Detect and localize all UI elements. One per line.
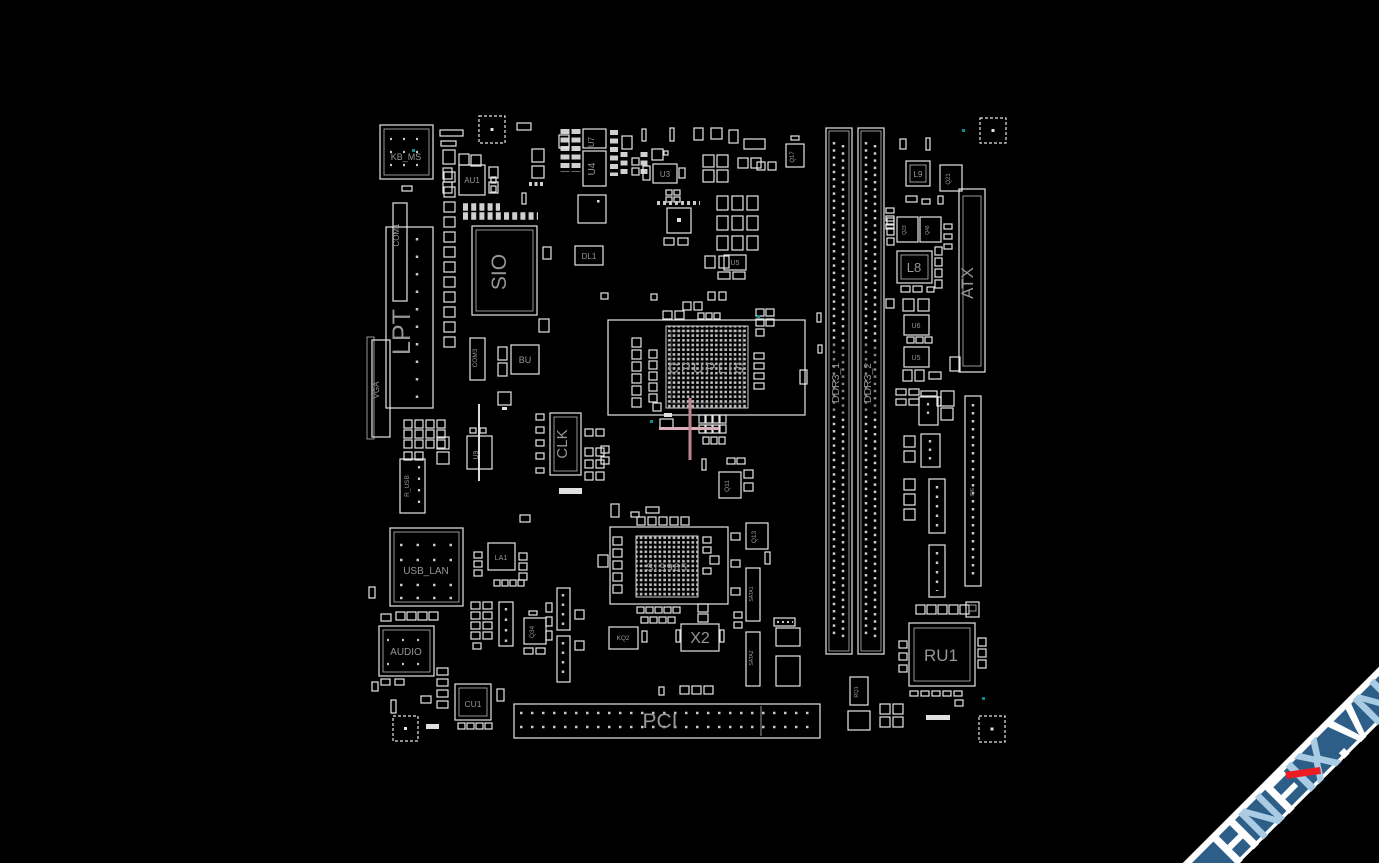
svg-text:RQ1: RQ1	[854, 686, 860, 697]
svg-text:VGA: VGA	[372, 381, 381, 399]
svg-text:U9: U9	[473, 450, 480, 459]
svg-text:PCI: PCI	[642, 710, 677, 733]
svg-text:LA1: LA1	[495, 555, 508, 562]
svg-text:SATA1: SATA1	[749, 586, 755, 601]
svg-text:CLK: CLK	[554, 429, 571, 458]
svg-text:AU1: AU1	[464, 176, 480, 185]
svg-text:ATX: ATX	[958, 267, 977, 299]
svg-text:Q48: Q48	[925, 225, 931, 235]
svg-text:USB_LAN: USB_LAN	[403, 566, 449, 577]
svg-text:U7: U7	[587, 136, 596, 147]
svg-text:COM3: COM3	[472, 348, 479, 367]
svg-text:U3: U3	[660, 170, 671, 179]
svg-text:Q34: Q34	[529, 625, 536, 638]
svg-text:LPT: LPT	[388, 309, 416, 355]
svg-text:U5: U5	[912, 355, 921, 362]
svg-text:DDR3_1: DDR3_1	[830, 363, 842, 403]
svg-text:Q21: Q21	[946, 173, 952, 185]
svg-text:U6: U6	[912, 323, 921, 330]
svg-text:L8: L8	[907, 260, 921, 275]
svg-text:R_USB: R_USB	[404, 475, 411, 497]
svg-text:Q13: Q13	[751, 530, 758, 543]
svg-text:DL1: DL1	[582, 252, 597, 261]
svg-text:U5: U5	[731, 260, 740, 267]
svg-text:L9: L9	[914, 170, 923, 179]
svg-text:U4: U4	[587, 162, 598, 175]
svg-text:KQ2: KQ2	[616, 635, 629, 642]
svg-text:CU1: CU1	[464, 699, 481, 709]
svg-text:Q23: Q23	[902, 225, 908, 235]
svg-text:SIO: SIO	[488, 254, 511, 290]
svg-text:IDE: IDE	[970, 487, 976, 497]
svg-text:Q11: Q11	[724, 480, 731, 492]
svg-text:BU: BU	[519, 355, 532, 365]
svg-text:AUDIO: AUDIO	[390, 647, 422, 658]
svg-text:Q17: Q17	[790, 151, 796, 163]
svg-text:SATA2: SATA2	[749, 650, 755, 665]
svg-text:DDR3_2: DDR3_2	[862, 363, 874, 403]
svg-text:X2: X2	[690, 630, 710, 647]
svg-text:SIS965: SIS965	[646, 562, 688, 574]
svg-text:CPUPLIS: CPUPLIS	[668, 360, 746, 377]
svg-text:KB_MS: KB_MS	[391, 152, 422, 162]
svg-text:RU1: RU1	[924, 646, 958, 665]
